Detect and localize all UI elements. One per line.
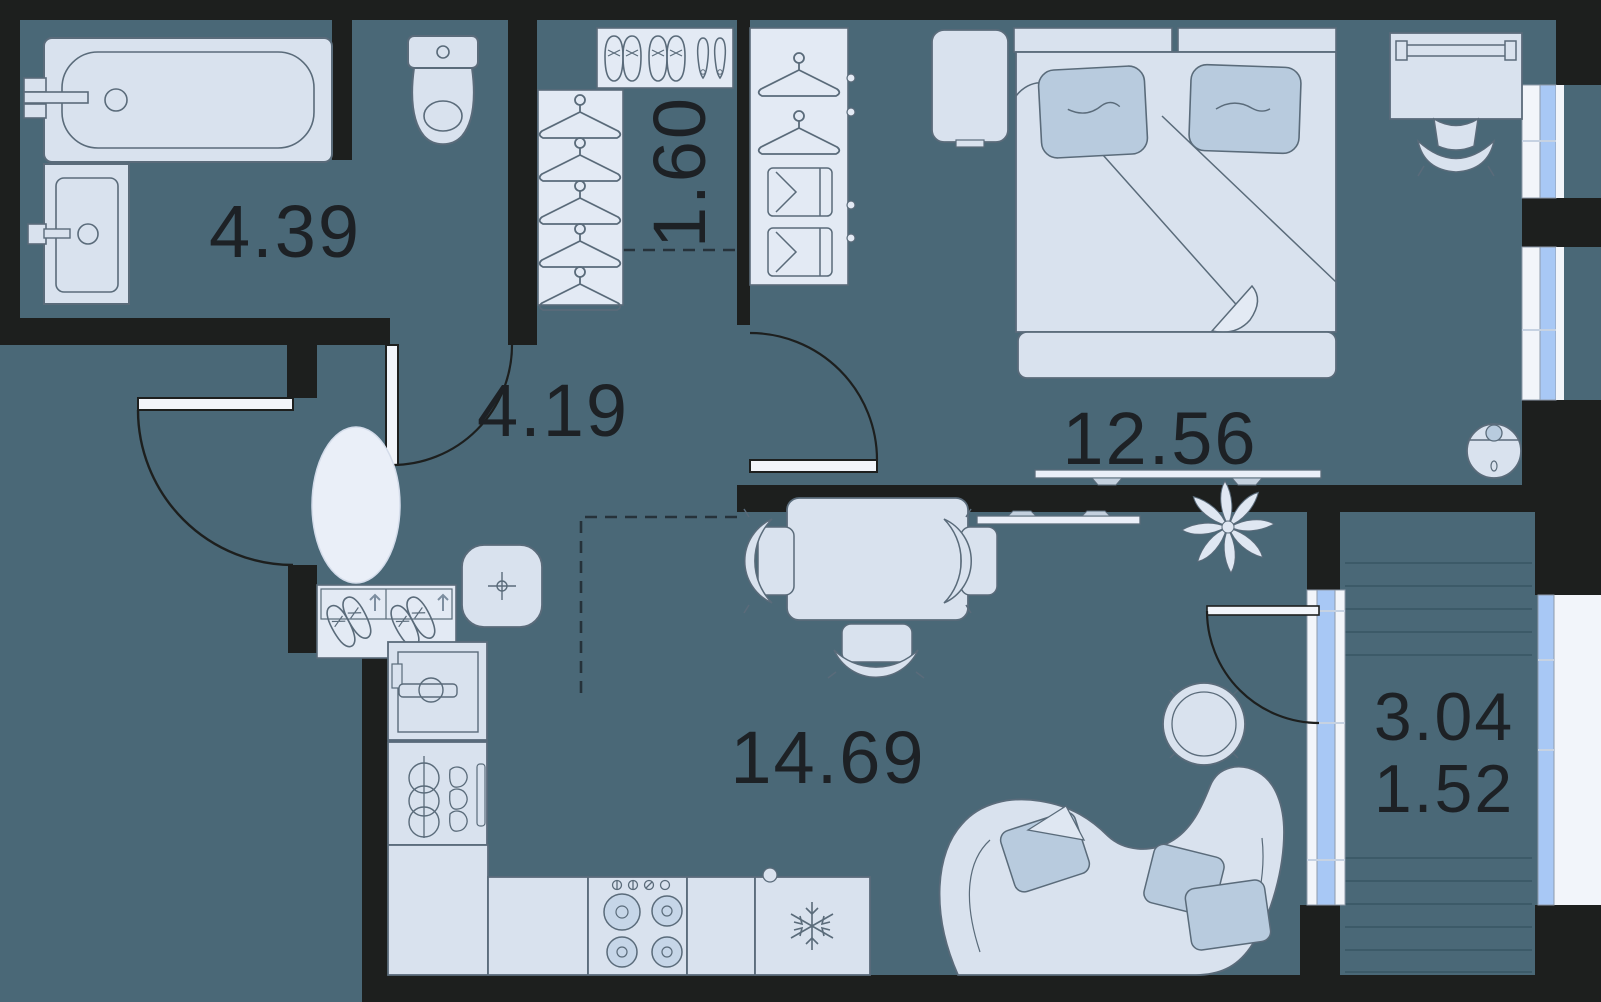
washing-machine — [388, 642, 487, 740]
balcony-area-label: 3.04 — [1374, 679, 1514, 755]
shoe-shelf — [597, 28, 733, 88]
pouf — [462, 545, 542, 627]
balcony-reduced-area-label: 1.52 — [1374, 751, 1514, 827]
floor-plan: 4.39 1.60 4.19 — [0, 0, 1601, 1002]
counter — [687, 877, 755, 975]
closet-area-label: 1.60 — [638, 96, 721, 248]
fridge — [755, 868, 870, 975]
bedroom-area-label: 12.56 — [1062, 397, 1257, 480]
closet-wardrobe — [538, 90, 623, 310]
bathroom-area-label: 4.39 — [209, 190, 361, 273]
kitchen-sink-cabinet — [388, 742, 487, 845]
stove — [588, 877, 687, 975]
balcony-window-left — [1307, 590, 1345, 905]
robot-vacuum — [1467, 424, 1521, 478]
pillow — [1038, 65, 1148, 158]
counter — [488, 877, 588, 975]
hallway-area-label: 4.19 — [477, 369, 629, 452]
counter-corner — [388, 845, 488, 975]
washbasin — [28, 164, 129, 304]
double-bed — [1014, 28, 1336, 378]
dining-table — [787, 498, 968, 620]
balcony-window-right — [1538, 595, 1601, 905]
floor-plan-canvas: 4.39 1.60 4.19 — [0, 0, 1601, 1002]
oval-rug — [312, 427, 400, 583]
desk — [1390, 33, 1522, 119]
pillow — [1189, 64, 1302, 154]
bathtub — [24, 38, 332, 162]
toilet — [408, 36, 478, 144]
bedroom-wardrobe — [750, 28, 855, 285]
nightstand — [932, 30, 1008, 147]
coffee-table — [1163, 683, 1245, 765]
living-area-label: 14.69 — [730, 716, 925, 799]
